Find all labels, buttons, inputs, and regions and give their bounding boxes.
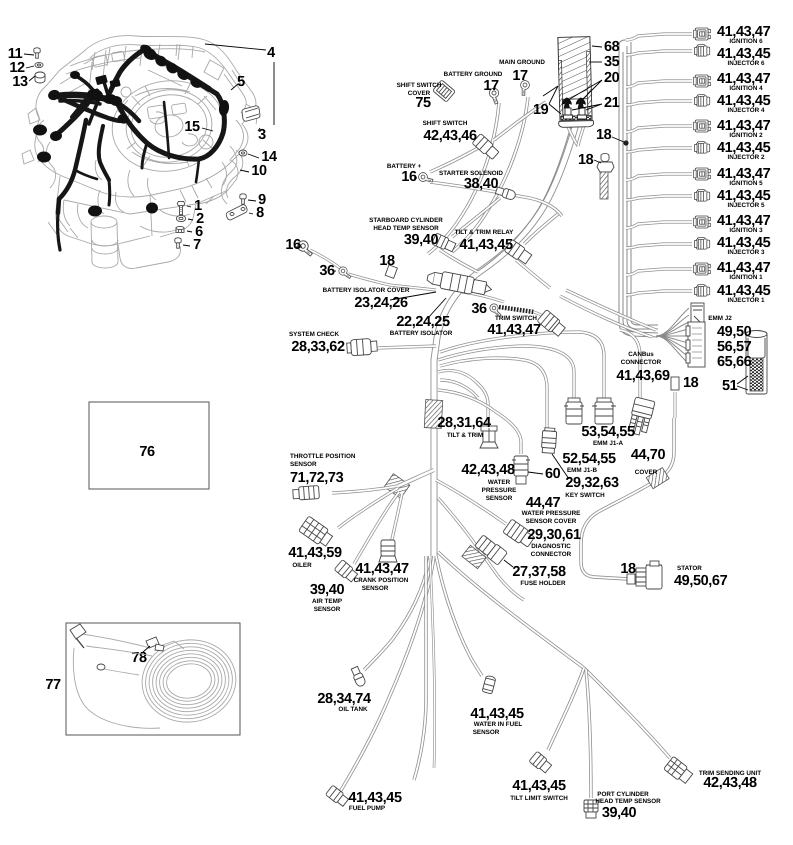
svg-text:AIR TEMP: AIR TEMP: [312, 598, 342, 605]
svg-text:42,43,46: 42,43,46: [423, 128, 477, 144]
svg-text:EMM J1-A: EMM J1-A: [593, 440, 624, 447]
svg-text:SENSOR: SENSOR: [362, 585, 389, 592]
svg-text:SENSOR COVER: SENSOR COVER: [526, 518, 577, 525]
svg-text:THROTTLE POSITION: THROTTLE POSITION: [290, 453, 356, 460]
svg-text:49,50,67: 49,50,67: [674, 573, 728, 589]
svg-text:SENSOR: SENSOR: [314, 606, 341, 613]
svg-text:EMM J1-B: EMM J1-B: [567, 467, 598, 474]
svg-text:TRIM SWITCH: TRIM SWITCH: [495, 315, 537, 322]
svg-text:28,34,74: 28,34,74: [317, 691, 371, 707]
svg-text:16: 16: [401, 169, 417, 185]
svg-text:4: 4: [267, 45, 275, 61]
svg-text:BATTERY ISOLATOR: BATTERY ISOLATOR: [390, 330, 453, 337]
svg-text:18: 18: [379, 253, 395, 269]
svg-text:23,24,26: 23,24,26: [354, 295, 408, 311]
svg-text:16: 16: [285, 237, 301, 253]
svg-text:WATER: WATER: [488, 479, 511, 486]
svg-text:TILT & TRIM RELAY: TILT & TRIM RELAY: [455, 229, 515, 236]
svg-text:18: 18: [683, 375, 699, 391]
svg-text:75: 75: [415, 95, 431, 111]
svg-text:WATER PRESSURE: WATER PRESSURE: [522, 510, 581, 517]
svg-text:SHIFT SWITCH: SHIFT SWITCH: [423, 120, 468, 127]
svg-text:42,43,48: 42,43,48: [461, 462, 515, 478]
svg-text:FUSE HOLDER: FUSE HOLDER: [520, 580, 566, 587]
svg-text:41,43,69: 41,43,69: [616, 368, 670, 384]
svg-text:28,31,64: 28,31,64: [437, 415, 491, 431]
svg-text:76: 76: [139, 444, 155, 460]
svg-text:20: 20: [604, 70, 620, 86]
svg-text:18: 18: [620, 561, 636, 577]
svg-text:38,40: 38,40: [464, 176, 499, 192]
svg-text:OILER: OILER: [292, 562, 312, 569]
svg-text:BATTERY GROUND: BATTERY GROUND: [444, 71, 503, 78]
svg-text:HEAD TEMP SENSOR: HEAD TEMP SENSOR: [373, 225, 439, 232]
svg-text:17: 17: [512, 68, 528, 84]
svg-text:IGNITION 4: IGNITION 4: [729, 85, 763, 92]
svg-text:INJECTOR 6: INJECTOR 6: [728, 60, 765, 67]
svg-text:21: 21: [604, 95, 620, 111]
svg-text:EMM J2: EMM J2: [708, 315, 732, 322]
svg-text:77: 77: [45, 677, 61, 693]
svg-text:TILT LIMIT SWITCH: TILT LIMIT SWITCH: [510, 795, 568, 802]
svg-text:22,24,25: 22,24,25: [396, 314, 450, 330]
svg-text:IGNITION 6: IGNITION 6: [729, 38, 763, 45]
svg-text:STATOR: STATOR: [677, 565, 702, 572]
svg-text:CRANK POSITION: CRANK POSITION: [354, 577, 409, 584]
svg-text:SENSOR: SENSOR: [290, 461, 317, 468]
svg-text:68: 68: [604, 39, 620, 55]
svg-text:41,43,45: 41,43,45: [348, 790, 402, 806]
svg-text:71,72,73: 71,72,73: [290, 470, 344, 486]
svg-text:SYSTEM CHECK: SYSTEM CHECK: [289, 331, 339, 338]
svg-text:35: 35: [604, 54, 620, 70]
svg-text:STARBOARD CYLINDER: STARBOARD CYLINDER: [369, 217, 443, 224]
svg-text:42,43,48: 42,43,48: [703, 775, 757, 791]
svg-text:INJECTOR 5: INJECTOR 5: [728, 202, 765, 209]
svg-text:MAIN GROUND: MAIN GROUND: [499, 59, 545, 66]
svg-text:39,40: 39,40: [602, 805, 637, 821]
svg-text:41,43,47: 41,43,47: [355, 561, 409, 577]
svg-text:PORT CYLINDER: PORT CYLINDER: [597, 791, 649, 798]
svg-text:TILT & TRIM: TILT & TRIM: [447, 432, 483, 439]
svg-text:SENSOR: SENSOR: [486, 495, 513, 502]
svg-text:IGNITION 5: IGNITION 5: [729, 180, 763, 187]
svg-text:51: 51: [722, 378, 738, 394]
svg-text:13: 13: [12, 74, 28, 90]
svg-text:17: 17: [483, 78, 499, 94]
svg-text:OIL TANK: OIL TANK: [338, 706, 368, 713]
svg-text:CANBus: CANBus: [628, 351, 654, 358]
svg-text:41,43,59: 41,43,59: [288, 545, 342, 561]
svg-text:28,33,62: 28,33,62: [291, 339, 345, 355]
svg-text:FUEL PUMP: FUEL PUMP: [349, 805, 385, 812]
svg-text:60: 60: [545, 466, 561, 482]
svg-text:KEY SWITCH: KEY SWITCH: [565, 492, 605, 499]
svg-text:29,30,61: 29,30,61: [527, 527, 581, 543]
svg-text:18: 18: [596, 127, 612, 143]
svg-text:44,70: 44,70: [631, 447, 666, 463]
svg-text:DIAGNOSTIC: DIAGNOSTIC: [531, 543, 571, 550]
svg-text:36: 36: [471, 301, 487, 317]
svg-text:41,43,45: 41,43,45: [459, 237, 513, 253]
svg-text:INJECTOR 1: INJECTOR 1: [728, 297, 765, 304]
svg-text:29,32,63: 29,32,63: [565, 475, 619, 491]
svg-text:CONNECTOR: CONNECTOR: [621, 359, 662, 366]
svg-text:INJECTOR 3: INJECTOR 3: [728, 249, 765, 256]
svg-text:IGNITION 2: IGNITION 2: [729, 132, 763, 139]
svg-text:IGNITION 3: IGNITION 3: [729, 227, 763, 234]
svg-text:INJECTOR 2: INJECTOR 2: [728, 154, 765, 161]
svg-text:5: 5: [237, 74, 245, 90]
svg-text:41,43,47: 41,43,47: [487, 322, 541, 338]
svg-text:HEAD TEMP SENSOR: HEAD TEMP SENSOR: [595, 798, 661, 805]
svg-text:PRESSURE: PRESSURE: [482, 487, 517, 494]
svg-text:49,50: 49,50: [717, 324, 752, 340]
svg-text:41,43,45: 41,43,45: [512, 778, 566, 794]
svg-text:10: 10: [251, 163, 267, 179]
svg-text:41,43,45: 41,43,45: [470, 706, 524, 722]
svg-text:53,54,55: 53,54,55: [581, 424, 635, 440]
svg-text:IGNITION 1: IGNITION 1: [729, 274, 763, 281]
svg-text:7: 7: [193, 237, 201, 253]
svg-text:SHIFT SWITCH: SHIFT SWITCH: [397, 82, 442, 89]
svg-text:27,37,58: 27,37,58: [512, 564, 566, 580]
svg-text:19: 19: [533, 102, 549, 118]
svg-text:BATTERY ISOLATOR COVER: BATTERY ISOLATOR COVER: [323, 287, 410, 294]
svg-text:44,47: 44,47: [526, 495, 561, 511]
svg-text:18: 18: [578, 152, 594, 168]
svg-text:39,40: 39,40: [404, 232, 439, 248]
svg-text:15: 15: [184, 119, 200, 135]
svg-text:36: 36: [319, 263, 335, 279]
svg-text:8: 8: [256, 205, 264, 221]
svg-text:65,66: 65,66: [717, 354, 752, 370]
svg-text:CONNECTOR: CONNECTOR: [531, 551, 572, 558]
svg-text:WATER IN FUEL: WATER IN FUEL: [474, 721, 523, 728]
svg-text:SENSOR: SENSOR: [473, 729, 500, 736]
svg-text:INJECTOR 4: INJECTOR 4: [728, 107, 765, 114]
svg-text:39,40: 39,40: [310, 582, 345, 598]
svg-text:52,54,55: 52,54,55: [562, 451, 616, 467]
svg-text:COVER: COVER: [635, 469, 658, 476]
svg-text:56,57: 56,57: [717, 339, 752, 355]
